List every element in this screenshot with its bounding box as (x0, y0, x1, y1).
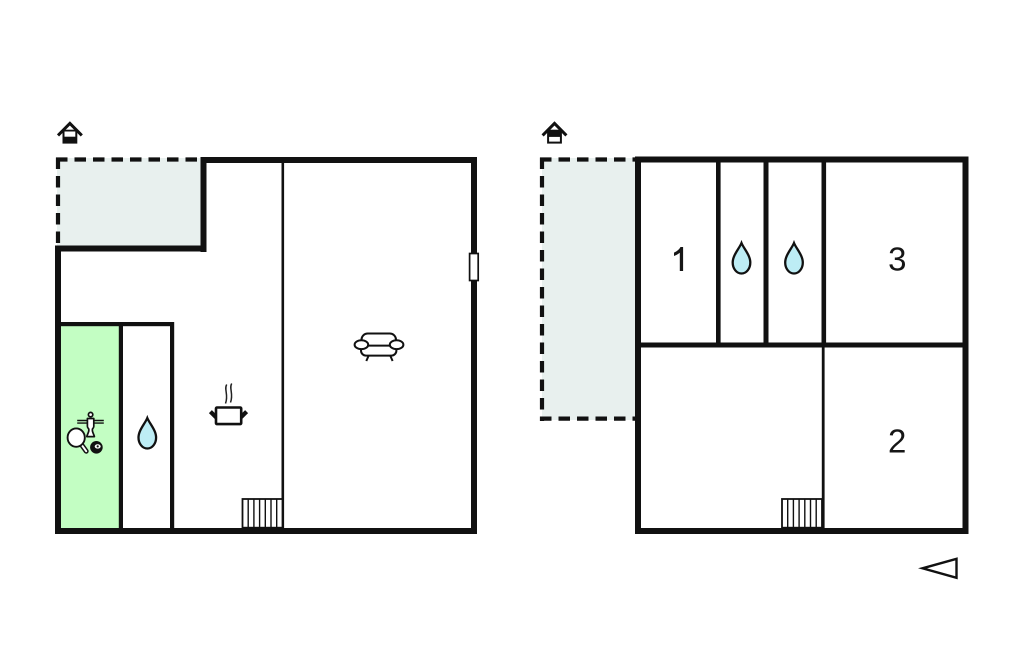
svg-text:2: 2 (888, 422, 906, 459)
svg-text:3: 3 (888, 240, 906, 277)
